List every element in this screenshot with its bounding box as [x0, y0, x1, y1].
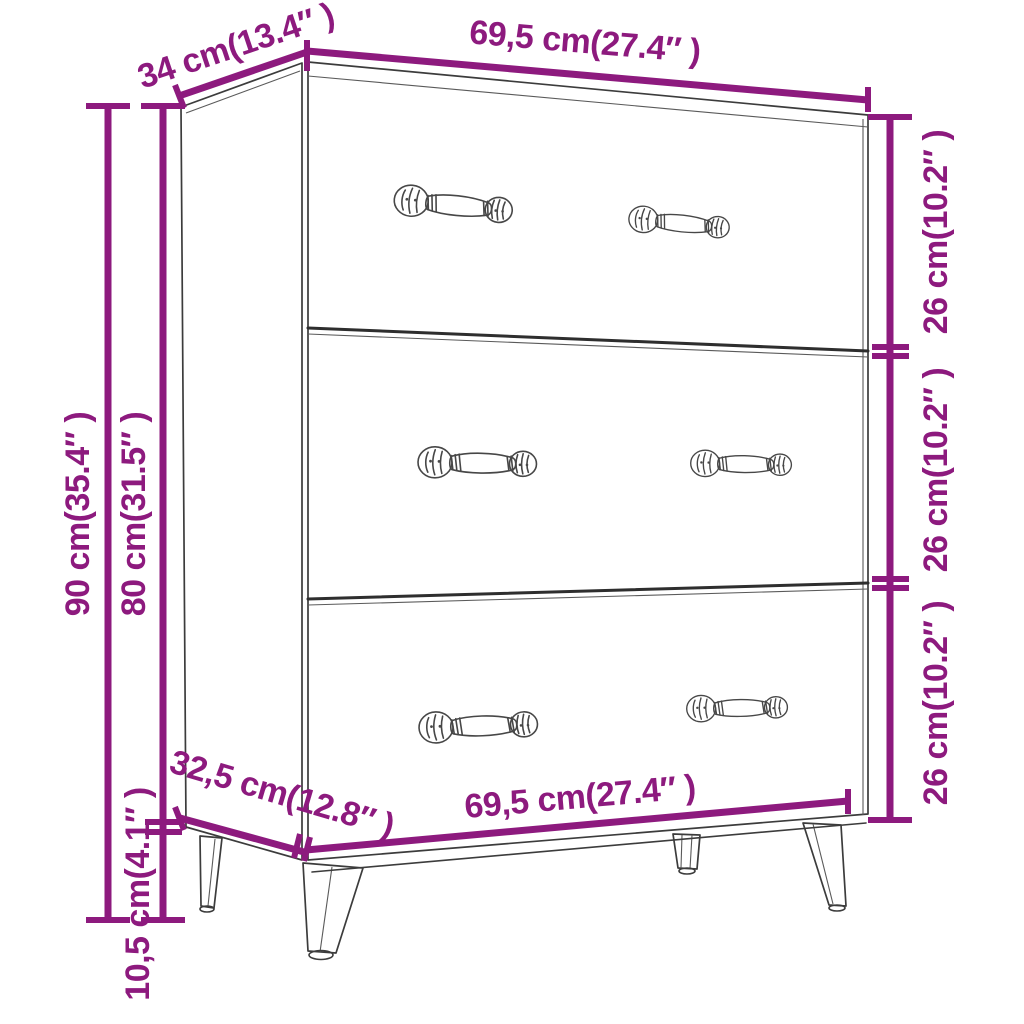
sideboard-illustration: 34 cm(13.4″ ) 69,5 cm(27.4″ ) 26 cm(10.2…	[0, 0, 1024, 1024]
leg-front-left	[303, 863, 363, 960]
dim-label-body-height: 80 cm(31.5″ )	[115, 412, 153, 616]
product-dimension-diagram: 34 cm(13.4″ ) 69,5 cm(27.4″ ) 26 cm(10.2…	[0, 0, 1024, 1024]
dim-label-drawer2-height: 26 cm(10.2″ )	[917, 368, 955, 572]
dim-label-total-height: 90 cm(35.4″ )	[59, 412, 97, 616]
cabinet-side-panel	[181, 63, 302, 860]
dim-label-leg-height: 10,5 cm(4.1″ )	[119, 787, 157, 1000]
dim-label-top-width: 69,5 cm(27.4″ )	[468, 13, 702, 70]
dim-right-drawer-heights	[868, 117, 912, 820]
leg-back-left	[200, 836, 222, 912]
dim-label-drawer1-height: 26 cm(10.2″ )	[917, 130, 955, 334]
leg-front-right	[803, 823, 846, 911]
dim-label-drawer3-height: 26 cm(10.2″ )	[917, 601, 955, 805]
cabinet-line-art	[181, 62, 868, 960]
